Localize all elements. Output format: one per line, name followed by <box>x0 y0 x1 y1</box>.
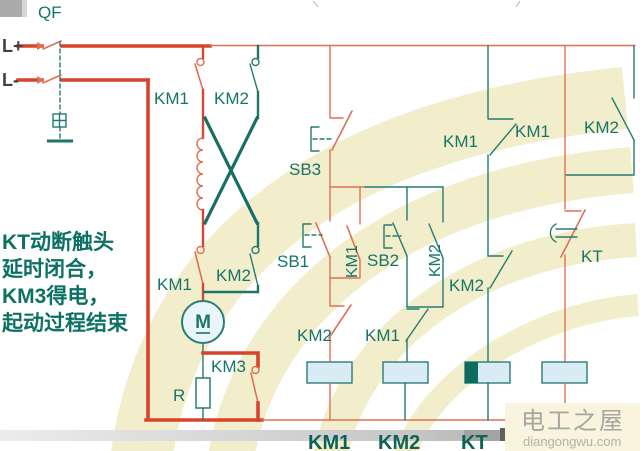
label-km2-top: KM2 <box>214 89 249 108</box>
label-sb2: SB2 <box>367 251 399 270</box>
cropped-text-marks <box>313 1 520 7</box>
label-l-minus: L- <box>2 70 19 90</box>
label-km2-interlock: KM2 <box>297 326 332 345</box>
label-km1-selfhold: KM1 <box>344 245 361 278</box>
label-km2-right: KM2 <box>584 118 619 137</box>
km2-coil <box>383 362 428 383</box>
kt-coil-delay-mark <box>465 362 478 383</box>
watermark: 电工之屋 diangongwu.com <box>505 403 640 451</box>
reversing-cross-wires <box>205 118 257 223</box>
label-sb3: SB3 <box>289 160 321 179</box>
label-km1-interlock: KM1 <box>365 326 400 345</box>
label-km2-selfhold: KM2 <box>427 244 444 277</box>
slide-circuit-diagram: QF L+ L- KM1 KM2 KM1 KM2 M <box>0 0 640 451</box>
note-line-1: KT动断触头 <box>2 230 114 254</box>
background-swirl <box>140 98 638 451</box>
label-km3: KM3 <box>211 357 246 376</box>
corner-fragment <box>0 0 22 17</box>
label-r: R <box>173 386 185 405</box>
note-text-block: KT动断触头 延时闭合， KM3得电， 起动过程结束 <box>1 230 129 335</box>
km2-top-contact <box>250 46 259 118</box>
note-line-3: KM3得电， <box>2 284 109 308</box>
label-km1-aux-left: KM1 <box>443 132 478 151</box>
label-coil-km2: KM2 <box>378 432 420 451</box>
label-sb1: SB1 <box>277 252 309 271</box>
label-km1-aux-right: KM1 <box>515 122 550 141</box>
label-km2-aux: KM2 <box>449 276 484 295</box>
label-km1-bottom: KM1 <box>157 275 192 294</box>
label-km2-bottom: KM2 <box>216 266 251 285</box>
watermark-site-domain: diangongwu.com <box>523 434 621 449</box>
note-line-4: 起动过程结束 <box>1 311 129 335</box>
km1-top-contact <box>195 46 204 138</box>
dc-motor: M <box>182 301 224 343</box>
motor-m-label: M <box>195 312 211 333</box>
label-kt-contact: KT <box>581 247 603 266</box>
label-l-plus: L+ <box>2 36 24 56</box>
label-coil-km1: KM1 <box>308 432 350 451</box>
label-km1-top: KM1 <box>154 89 189 108</box>
reactor-winding-icon <box>197 138 203 210</box>
label-coil-kt: KT <box>461 432 488 451</box>
note-line-2: 延时闭合， <box>1 257 107 281</box>
kt-coil <box>465 362 510 383</box>
watermark-site-name: 电工之屋 <box>521 408 625 435</box>
km3-coil <box>542 362 587 383</box>
label-qf: QF <box>38 3 62 22</box>
km1-coil <box>307 362 352 383</box>
corner-fragment-edge <box>22 0 27 17</box>
